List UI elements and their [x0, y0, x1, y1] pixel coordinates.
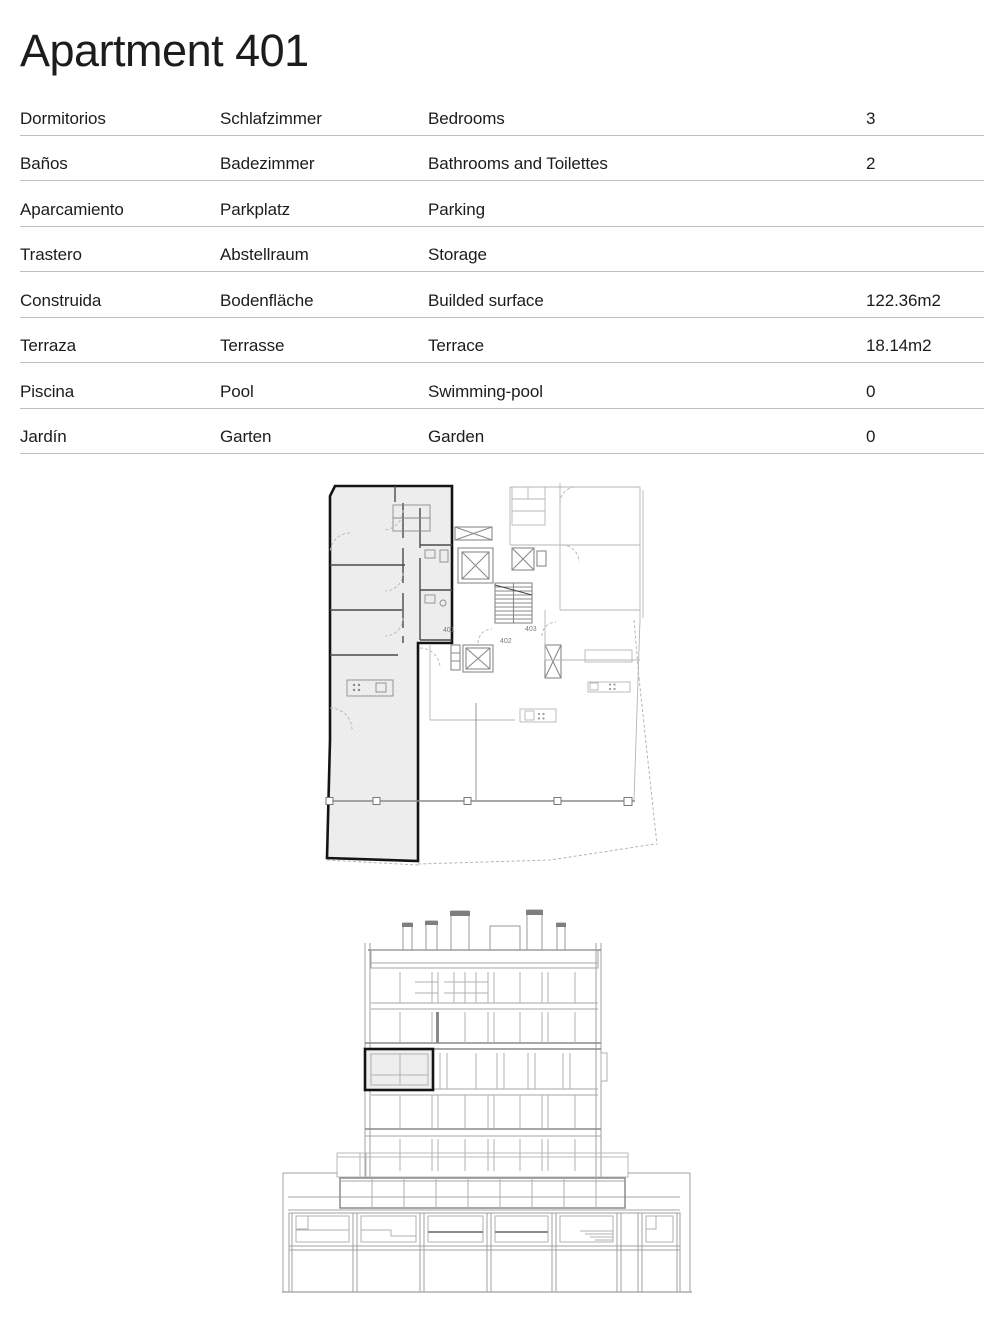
spec-label-de: Badezimmer: [220, 154, 428, 174]
spec-value: 3: [866, 109, 984, 129]
roof-chimneys: [402, 910, 566, 950]
stove-icon: [538, 683, 616, 719]
floorplan-figure: 401 402 403: [310, 478, 665, 872]
spec-label-en: Swimming-pool: [428, 382, 866, 402]
spec-label-es: Terraza: [20, 336, 220, 356]
core: [451, 527, 561, 678]
spec-label-en: Builded surface: [428, 291, 866, 311]
spec-label-de: Parkplatz: [220, 200, 428, 220]
table-row: Dormitorios Schlafzimmer Bedrooms 3: [20, 90, 984, 136]
table-row: Baños Badezimmer Bathrooms and Toilettes…: [20, 136, 984, 182]
spec-label-es: Construida: [20, 291, 220, 311]
unit-label-401: 401: [443, 627, 455, 634]
apartment-401-outline: [327, 486, 452, 861]
stairs-icon: [495, 583, 532, 623]
spec-label-de: Pool: [220, 382, 428, 402]
spec-value: 122.36m2: [866, 291, 984, 311]
setback-levels: [288, 1153, 680, 1210]
spec-label-es: Trastero: [20, 245, 220, 265]
elevator-icon: [458, 548, 493, 583]
spec-label-en: Bedrooms: [428, 109, 866, 129]
spec-table: Dormitorios Schlafzimmer Bedrooms 3 Baño…: [20, 90, 984, 454]
parapet: [368, 950, 601, 968]
page-title: Apartment 401: [20, 26, 309, 76]
spec-label-es: Jardín: [20, 427, 220, 447]
elevation-drawing: [280, 905, 695, 1295]
podium: [283, 1173, 690, 1292]
table-row: Terraza Terrasse Terrace 18.14m2: [20, 318, 984, 364]
bed-icon: [512, 487, 545, 525]
spec-label-en: Garden: [428, 427, 866, 447]
spec-label-en: Bathrooms and Toilettes: [428, 154, 866, 174]
elevation-figure: [280, 905, 695, 1295]
table-row: Piscina Pool Swimming-pool 0: [20, 363, 984, 409]
spec-label-de: Garten: [220, 427, 428, 447]
spec-value: 18.14m2: [866, 336, 984, 356]
elevator-icon: [545, 645, 561, 678]
unit-label-403: 403: [525, 626, 537, 633]
floorplan-drawing: 401 402 403: [310, 478, 665, 872]
highlight-apartment-401: [365, 1049, 433, 1090]
spec-label-de: Terrasse: [220, 336, 428, 356]
spec-label-en: Storage: [428, 245, 866, 265]
spec-label-es: Piscina: [20, 382, 220, 402]
spec-value: 0: [866, 382, 984, 402]
spec-label-de: Schlafzimmer: [220, 109, 428, 129]
table-row: Trastero Abstellraum Storage: [20, 227, 984, 273]
table-row: Aparcamiento Parkplatz Parking: [20, 181, 984, 227]
spec-label-de: Abstellraum: [220, 245, 428, 265]
unit-label-402: 402: [500, 638, 512, 645]
elevator-icon: [512, 548, 546, 570]
spec-label-en: Parking: [428, 200, 866, 220]
spec-value: 2: [866, 154, 984, 174]
spec-label-es: Baños: [20, 154, 220, 174]
table-row: Construida Bodenfläche Builded surface 1…: [20, 272, 984, 318]
vent-shaft-icon: [455, 527, 492, 540]
chimney-cap: [402, 910, 566, 927]
elevator-icon: [451, 645, 493, 672]
table-row: Jardín Garten Garden 0: [20, 409, 984, 455]
spec-label-de: Bodenfläche: [220, 291, 428, 311]
spec-label-en: Terrace: [428, 336, 866, 356]
spec-value: 0: [866, 427, 984, 447]
spec-label-es: Aparcamiento: [20, 200, 220, 220]
spec-label-es: Dormitorios: [20, 109, 220, 129]
apartment-spec-sheet: Apartment 401 Dormitorios Schlafzimmer B…: [0, 0, 1000, 1322]
neighbour-apartments: [430, 483, 643, 800]
